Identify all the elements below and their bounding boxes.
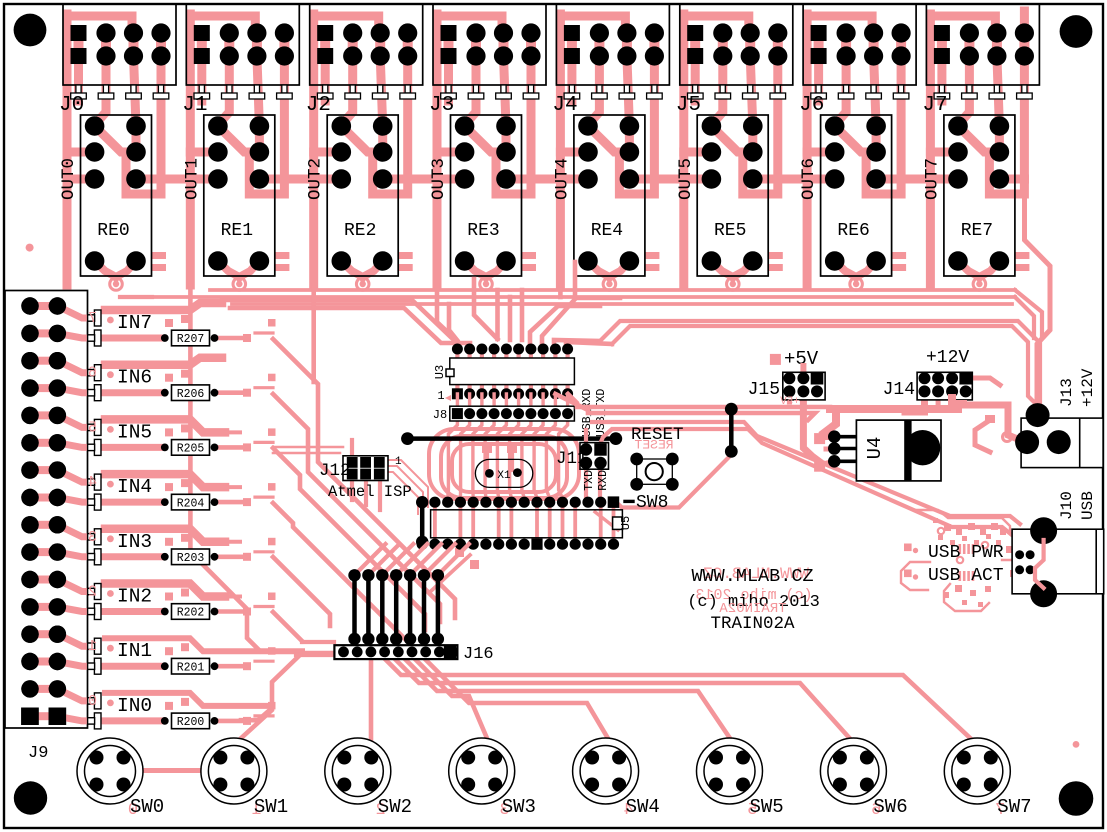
svg-text:+5V: +5V bbox=[780, 396, 800, 408]
svg-text:4: 4 bbox=[88, 474, 97, 491]
svg-text:1: 1 bbox=[395, 456, 402, 468]
svg-text:OUT6: OUT6 bbox=[799, 158, 819, 200]
svg-text:IN3: IN3 bbox=[117, 531, 152, 553]
svg-text:J13: J13 bbox=[1058, 378, 1076, 407]
svg-text:J12: J12 bbox=[319, 461, 351, 481]
svg-text:J6: J6 bbox=[799, 94, 824, 117]
svg-text:U3: U3 bbox=[433, 365, 447, 379]
svg-text:7: 7 bbox=[88, 310, 97, 327]
svg-text:1: 1 bbox=[437, 389, 444, 403]
svg-text:RE5: RE5 bbox=[714, 221, 746, 241]
svg-text:J11: J11 bbox=[556, 449, 588, 469]
svg-text:R202: R202 bbox=[177, 607, 205, 620]
svg-text:SW5: SW5 bbox=[750, 796, 784, 818]
svg-text:+12V: +12V bbox=[1079, 368, 1097, 407]
svg-text:J4: J4 bbox=[552, 94, 577, 117]
svg-text:5: 5 bbox=[88, 419, 97, 436]
svg-text:R201: R201 bbox=[177, 661, 205, 674]
svg-text:1: 1 bbox=[88, 638, 97, 655]
svg-text:3: 3 bbox=[88, 529, 97, 546]
svg-text:RXD: RXD bbox=[597, 470, 610, 491]
svg-text:2: 2 bbox=[88, 584, 97, 601]
svg-text:OUT7: OUT7 bbox=[922, 158, 942, 200]
svg-text:J1: J1 bbox=[182, 94, 207, 117]
svg-text:TRAIN02A: TRAIN02A bbox=[710, 614, 795, 634]
svg-text:RE6: RE6 bbox=[837, 221, 869, 241]
svg-text:OUT3: OUT3 bbox=[429, 158, 449, 200]
svg-text:6: 6 bbox=[88, 365, 97, 382]
svg-text:TXD: TXD bbox=[583, 470, 596, 491]
svg-text:U5: U5 bbox=[619, 516, 633, 530]
svg-text:RE2: RE2 bbox=[344, 221, 376, 241]
svg-text:OUT0: OUT0 bbox=[59, 158, 79, 200]
svg-text:OUT4: OUT4 bbox=[552, 158, 572, 200]
svg-text:R205: R205 bbox=[177, 443, 205, 456]
svg-text:OUT2: OUT2 bbox=[306, 158, 326, 200]
svg-text:SW6: SW6 bbox=[873, 796, 907, 818]
svg-text:SW0: SW0 bbox=[130, 796, 164, 818]
svg-text:J14: J14 bbox=[883, 380, 915, 400]
svg-text:R204: R204 bbox=[177, 497, 205, 510]
svg-text:RE1: RE1 bbox=[221, 221, 253, 241]
svg-text:R203: R203 bbox=[177, 552, 205, 565]
svg-text:IN1: IN1 bbox=[117, 640, 152, 662]
svg-text:SW7: SW7 bbox=[997, 796, 1031, 818]
svg-text:R207: R207 bbox=[177, 333, 205, 346]
svg-text:USB: USB bbox=[1079, 491, 1097, 520]
svg-text:IN2: IN2 bbox=[117, 586, 152, 608]
svg-text:IN4: IN4 bbox=[117, 476, 152, 498]
svg-text:0: 0 bbox=[88, 693, 97, 710]
svg-text:J5: J5 bbox=[676, 94, 701, 117]
svg-text:SW8: SW8 bbox=[636, 493, 668, 513]
svg-text:J15: J15 bbox=[748, 380, 780, 400]
svg-text:USB PWR: USB PWR bbox=[928, 543, 1004, 563]
svg-text:J0: J0 bbox=[59, 94, 84, 117]
svg-text:J3: J3 bbox=[429, 94, 454, 117]
svg-text:RE4: RE4 bbox=[591, 221, 623, 241]
svg-text:SW1: SW1 bbox=[254, 796, 288, 818]
svg-text:OUT5: OUT5 bbox=[676, 158, 696, 200]
svg-text:IN5: IN5 bbox=[117, 421, 152, 443]
svg-text:USB ACT: USB ACT bbox=[928, 566, 1004, 586]
svg-text:J10: J10 bbox=[1058, 491, 1076, 520]
svg-text:IN0: IN0 bbox=[117, 695, 152, 717]
svg-text:X1: X1 bbox=[497, 470, 511, 482]
svg-text:SW4: SW4 bbox=[626, 796, 660, 818]
svg-text:OUT1: OUT1 bbox=[182, 158, 202, 200]
svg-text:WWW.MLAB.CZ: WWW.MLAB.CZ bbox=[691, 566, 813, 587]
svg-text:RESET: RESET bbox=[634, 438, 673, 453]
svg-text:J9: J9 bbox=[28, 744, 48, 763]
svg-text:IN6: IN6 bbox=[117, 367, 152, 389]
svg-text:J8: J8 bbox=[433, 408, 447, 422]
svg-text:Atmel ISP: Atmel ISP bbox=[328, 483, 412, 501]
svg-text:SW2: SW2 bbox=[378, 796, 412, 818]
svg-text:J16: J16 bbox=[463, 645, 494, 664]
svg-text:RE7: RE7 bbox=[961, 221, 993, 241]
svg-text:RE0: RE0 bbox=[97, 221, 129, 241]
svg-text:U4: U4 bbox=[864, 437, 886, 460]
svg-text:R206: R206 bbox=[177, 388, 205, 401]
svg-text:RE3: RE3 bbox=[467, 221, 499, 241]
svg-text:IN7: IN7 bbox=[117, 312, 152, 334]
svg-text:R200: R200 bbox=[177, 716, 205, 729]
svg-text:J7: J7 bbox=[922, 94, 947, 117]
svg-text:J2: J2 bbox=[306, 94, 331, 117]
svg-text:SW3: SW3 bbox=[502, 796, 536, 818]
svg-text:+12V: +12V bbox=[926, 348, 969, 368]
